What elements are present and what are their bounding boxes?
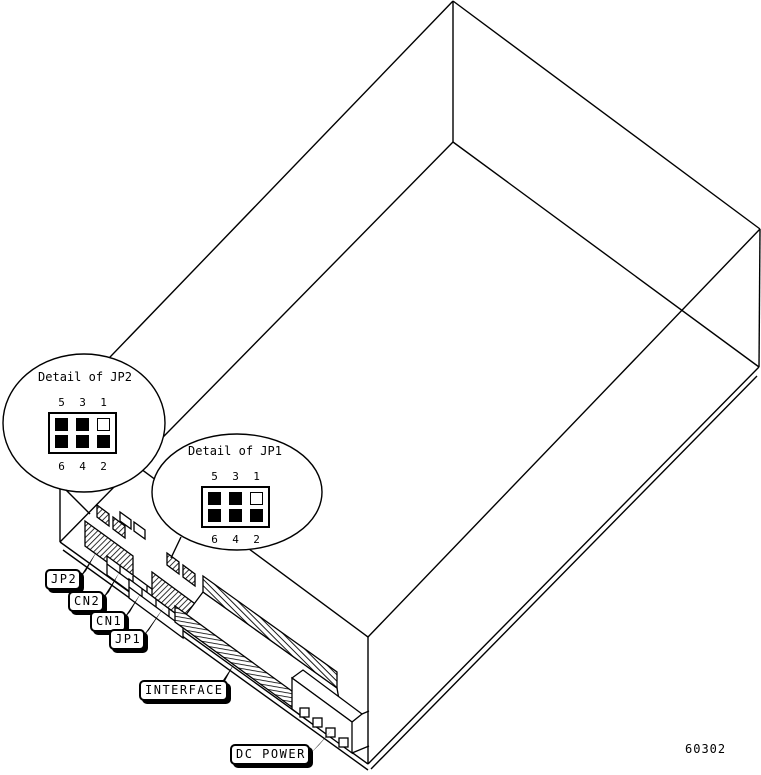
callout-jp2: JP2 — [45, 569, 81, 590]
jp2-jumper-grid — [48, 412, 117, 454]
jp1-cap-2 — [183, 565, 195, 586]
dc-pin-1 — [300, 708, 309, 717]
jp1-pin-3 — [229, 492, 242, 505]
callout-cn2: CN2 — [68, 591, 104, 612]
edge-top-left — [60, 1, 453, 409]
jp2-balloon-leader — [66, 490, 90, 514]
figure-canvas: Detail of JP2 5 3 1 6 4 2 Detail of JP1 … — [0, 0, 761, 775]
jp1-pin5-label: 5 — [208, 470, 221, 483]
jp1-cap-1 — [167, 553, 179, 574]
line-art — [0, 0, 761, 775]
rim-left-inner — [63, 550, 368, 770]
jp1-pin2-label: 2 — [250, 533, 263, 546]
jp2-pin-6 — [55, 435, 68, 448]
jp1-pin-6 — [208, 509, 221, 522]
jp1-detail-top-pin-numbers: 5 3 1 — [208, 470, 263, 483]
jp2-pin-4 — [76, 435, 89, 448]
dc-pin-2 — [313, 718, 322, 727]
jp1-pin4-label: 4 — [229, 533, 242, 546]
dc-pin-3 — [326, 728, 335, 737]
jp2-pin-1 — [97, 418, 110, 431]
jp2-pin1-label: 1 — [97, 396, 110, 409]
jp1-pin-5 — [208, 492, 221, 505]
edge-top-right — [453, 1, 760, 229]
jp1-detail-title: Detail of JP1 — [178, 444, 292, 458]
edge-hidden-right — [453, 142, 759, 367]
jp2-pin-nub-2 — [134, 522, 145, 539]
callout-dc-power: DC POWER — [230, 744, 310, 765]
rim-right-inner — [371, 376, 757, 769]
drive-outline — [60, 1, 760, 770]
dc-edge-2 — [352, 746, 369, 753]
jp1-jumper-grid — [201, 486, 270, 528]
callout-interface: INTERFACE — [139, 680, 228, 701]
jp1-pin6-label: 6 — [208, 533, 221, 546]
jp1-pin3-label: 3 — [229, 470, 242, 483]
edge-right-vertical — [759, 229, 760, 367]
jp2-detail-title: Detail of JP2 — [28, 370, 142, 384]
jp1-pin-1 — [250, 492, 263, 505]
jp2-cap-1 — [97, 505, 109, 526]
jp1-pin-4 — [229, 509, 242, 522]
jp1-detail-bottom-pin-numbers: 6 4 2 — [208, 533, 263, 546]
jp2-pin4-label: 4 — [76, 460, 89, 473]
jp2-detail-top-pin-numbers: 5 3 1 — [55, 396, 110, 409]
callout-jp1: JP1 — [109, 629, 145, 650]
jp2-detail-bottom-pin-numbers: 6 4 2 — [55, 460, 110, 473]
jp2-pin-5 — [55, 418, 68, 431]
jp2-pin6-label: 6 — [55, 460, 68, 473]
jp2-pin5-label: 5 — [55, 396, 68, 409]
jp2-pin-3 — [76, 418, 89, 431]
rim-right-outer — [368, 367, 759, 764]
jp1-pin1-label: 1 — [250, 470, 263, 483]
jp2-pin3-label: 3 — [76, 396, 89, 409]
jp1-pin-2 — [250, 509, 263, 522]
jp1-balloon-leader — [171, 537, 181, 558]
jp2-pin-2 — [97, 435, 110, 448]
jp2-pin2-label: 2 — [97, 460, 110, 473]
dc-pin-4 — [339, 738, 348, 747]
figure-number: 60302 — [685, 742, 726, 756]
